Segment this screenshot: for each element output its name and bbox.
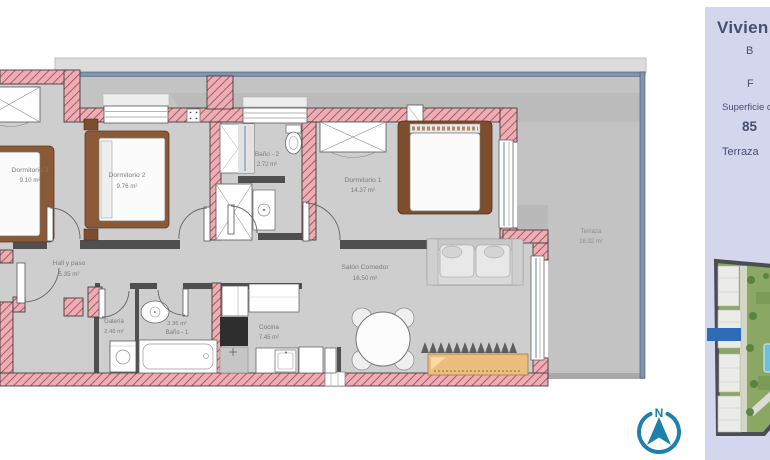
label-cocina-area: 7.45 m²: [259, 335, 279, 341]
panel-row-surface-value: 85: [742, 119, 757, 134]
terrace-glass-balustrade-top: [58, 72, 645, 77]
label-dormitorio3-area: 9.10 m²: [20, 177, 41, 184]
window-sill: [243, 97, 307, 107]
north-compass: N: [628, 401, 690, 459]
label-cocina-name: Cocina: [259, 324, 279, 331]
floor-plan: Dormitorio 3 9.10 m² Dormitorio 2 9.76 m…: [0, 0, 770, 460]
label-bano1-name: Baño - 1: [166, 330, 189, 336]
shower-bano2: [220, 124, 254, 173]
site-pool: [764, 344, 770, 372]
oven-column: [220, 317, 248, 346]
label-salon-area: 16.50 m²: [353, 275, 377, 282]
exterior-door-bottom: [325, 372, 345, 386]
bed-dormitorio1: [398, 121, 492, 214]
panel-row-surface-label: Superficie c: [722, 102, 770, 113]
wall-junction-box: [187, 109, 200, 122]
panel-row-floor: F: [747, 78, 754, 90]
washing-machine-galeria: [110, 341, 136, 372]
bed-dormitorio2: [84, 119, 169, 240]
wardrobe-dormitorio3: [0, 87, 40, 127]
label-bano2-area: 2.72 m²: [257, 162, 277, 168]
label-hall-area: 5.35 m²: [59, 271, 80, 278]
wardrobe-dormitorio1: [320, 122, 386, 158]
window-bano2: [243, 108, 307, 123]
panel-row-terrace-label: Terraza: [722, 146, 759, 158]
panel-row-block: B: [746, 45, 753, 57]
label-dormitorio2-area: 9.76 m²: [117, 183, 138, 190]
bed-dormitorio3: [0, 146, 54, 242]
label-hall-name: Hall y paso: [53, 260, 86, 267]
terrace-slab-edge: [548, 373, 645, 379]
label-salon-name: Salón Comedor: [341, 264, 389, 271]
label-terraza-name: Terraza: [580, 228, 602, 235]
label-galeria-name: Galería: [104, 319, 124, 325]
sliding-door-salon: [531, 256, 544, 360]
compass-arrow: [647, 417, 671, 445]
site-unit-highlight: [707, 328, 741, 341]
sliding-door-dormitorio1: [499, 140, 513, 228]
washbasin-bano1: [141, 301, 169, 323]
sideboard: [428, 354, 528, 375]
label-dormitorio3-name: Dormitorio 3: [11, 167, 48, 174]
label-galeria-area: 2.46 m²: [104, 329, 124, 335]
sofa: [427, 239, 523, 285]
panel-title: Vivien: [717, 18, 769, 38]
site-lawn-patch: [756, 292, 770, 304]
site-lawn-patch: [758, 376, 770, 390]
label-bano1-area: 3.36 m²: [167, 321, 187, 327]
label-dormitorio1-area: 14.37 m²: [351, 187, 375, 194]
label-bano2-name: Baño - 2: [255, 151, 280, 158]
kitchen-sink: [275, 350, 296, 372]
site-plan-thumbnail: [706, 258, 770, 438]
bathtub-bano1: [139, 340, 217, 373]
dining-table: [356, 312, 410, 366]
toilet-bano2: [286, 125, 302, 154]
terrace-glass-balustrade-right: [640, 72, 645, 378]
label-dormitorio2-name: Dormitorio 2: [108, 172, 145, 179]
label-dormitorio1-name: Dormitorio 1: [344, 177, 381, 184]
window-dormitorio2: [104, 106, 168, 123]
window-sill: [103, 94, 169, 106]
label-terraza-area: 28.92 m²: [579, 239, 603, 245]
fridge: [222, 286, 248, 316]
vanity-bano2: [253, 190, 275, 230]
